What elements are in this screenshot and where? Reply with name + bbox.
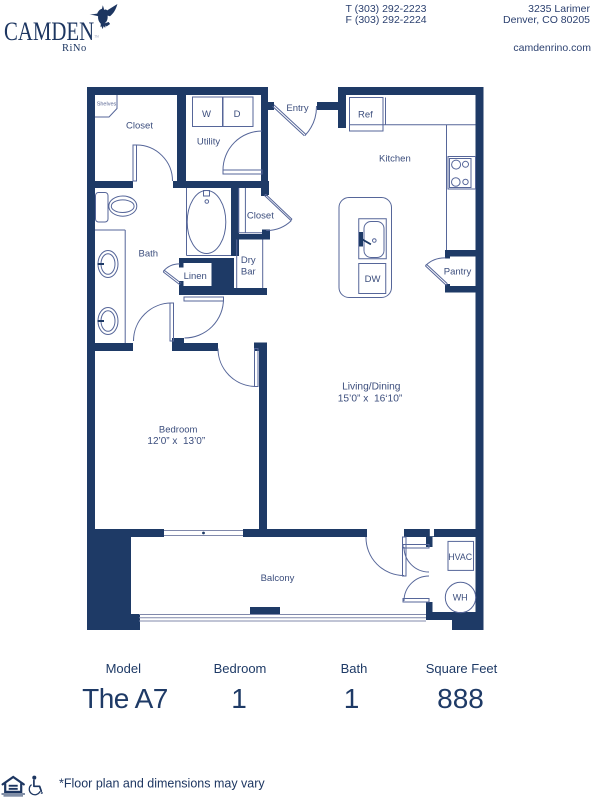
svg-text:Closet: Closet [247, 210, 274, 221]
svg-text:Kitchen: Kitchen [379, 154, 411, 165]
svg-text:W: W [202, 109, 211, 120]
svg-text:Closet: Closet [126, 121, 153, 132]
svg-text:Pantry: Pantry [444, 267, 472, 278]
svg-text:1: 1 [231, 683, 247, 714]
svg-text:Entry: Entry [286, 103, 308, 114]
svg-text:Balcony: Balcony [261, 573, 295, 584]
svg-text:WH: WH [453, 593, 468, 603]
svg-text:*Floor plan and dimensions may: *Floor plan and dimensions may vary [59, 777, 265, 791]
svg-text:Bar: Bar [241, 267, 256, 278]
svg-text:1: 1 [344, 683, 360, 714]
svg-text:The A7: The A7 [82, 683, 168, 714]
svg-text:15’0” x 16‘10”: 15’0” x 16‘10” [338, 393, 403, 404]
svg-text:HVAC: HVAC [448, 552, 472, 562]
svg-text:Dry: Dry [241, 255, 256, 266]
svg-text:Utility: Utility [197, 137, 220, 148]
svg-text:12’0” x 13’0”: 12’0” x 13’0” [147, 436, 205, 447]
svg-text:Living/Dining: Living/Dining [342, 382, 401, 393]
svg-text:888: 888 [437, 683, 484, 714]
svg-text:Bath: Bath [139, 249, 159, 260]
svg-text:DW: DW [365, 274, 381, 285]
svg-text:Model: Model [106, 661, 142, 676]
svg-text:Ref: Ref [358, 109, 373, 120]
svg-text:D: D [234, 109, 241, 120]
svg-text:Bedroom: Bedroom [159, 424, 198, 435]
svg-text:Bath: Bath [341, 661, 368, 676]
svg-text:Linen: Linen [184, 271, 207, 282]
svg-text:Bedroom: Bedroom [214, 661, 267, 676]
svg-text:Shelves: Shelves [97, 102, 117, 108]
svg-text:Square Feet: Square Feet [426, 661, 498, 676]
